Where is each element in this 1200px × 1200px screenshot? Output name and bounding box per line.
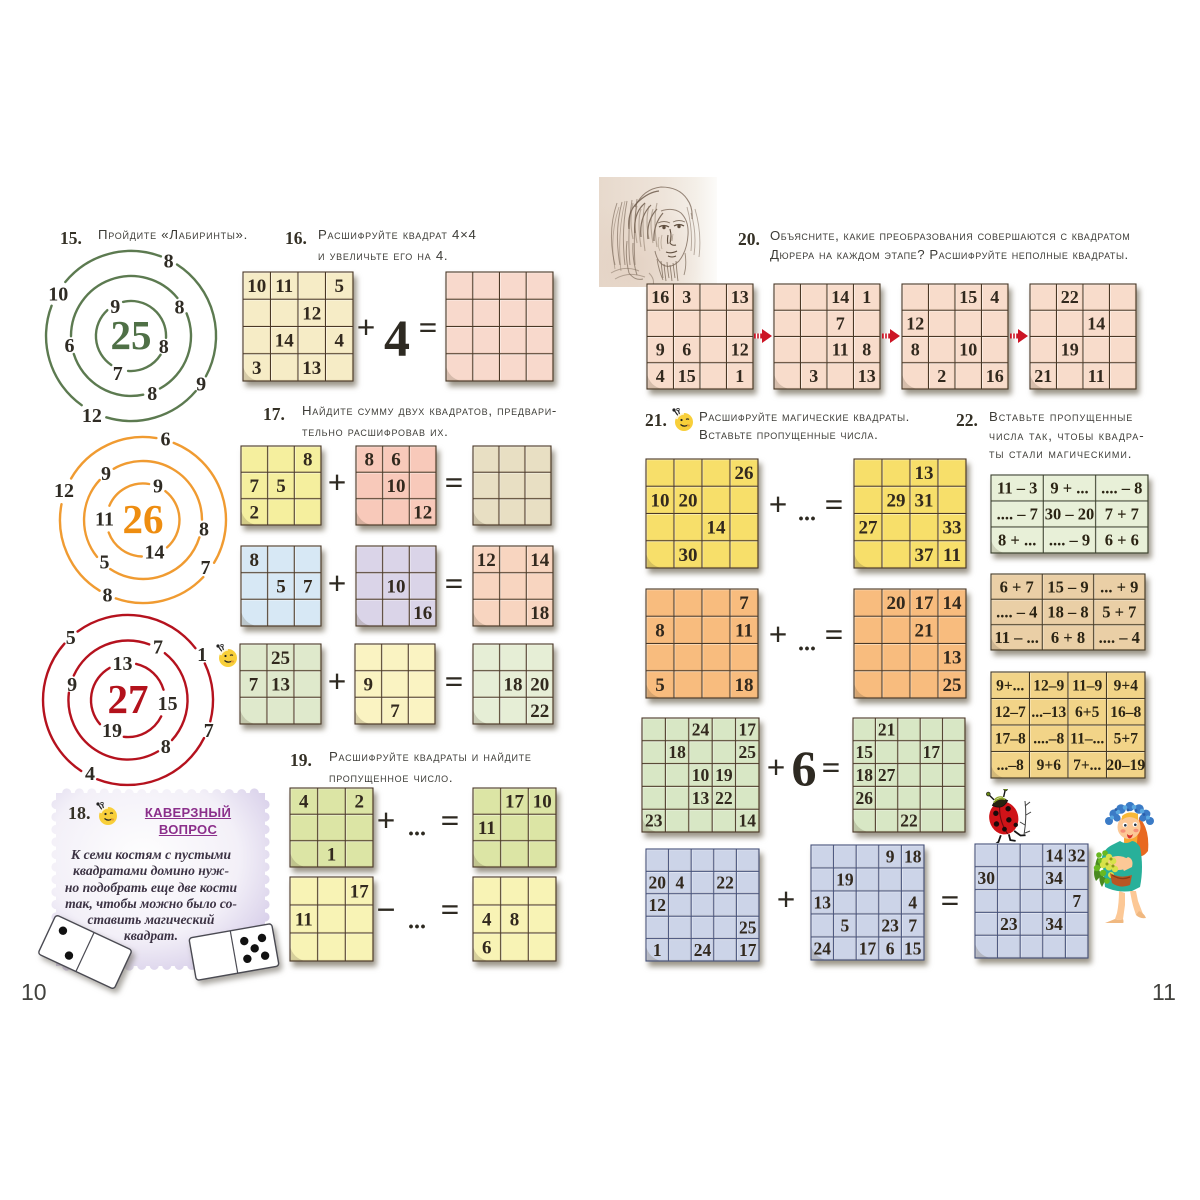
svg-text:8: 8: [655, 620, 665, 641]
svg-text:.... – 8: .... – 8: [1101, 479, 1142, 498]
svg-text:26: 26: [855, 788, 873, 808]
svg-text:18: 18: [504, 675, 523, 696]
svg-text:21: 21: [878, 719, 896, 739]
svg-text:30: 30: [679, 545, 698, 566]
svg-text:25: 25: [739, 742, 757, 762]
svg-text:5 + 7: 5 + 7: [1102, 603, 1136, 622]
svg-text:24: 24: [692, 719, 710, 739]
svg-text:6: 6: [682, 340, 691, 360]
svg-text:12: 12: [477, 550, 496, 571]
svg-text:21: 21: [915, 620, 934, 641]
svg-text:7: 7: [250, 476, 260, 497]
svg-text:5: 5: [841, 916, 850, 936]
svg-text:6 + 6: 6 + 6: [1105, 531, 1139, 550]
svg-text:7: 7: [249, 675, 259, 696]
svg-text:9: 9: [364, 675, 374, 696]
svg-text:13: 13: [692, 788, 710, 808]
svg-text:13: 13: [271, 675, 290, 696]
svg-text:4: 4: [990, 287, 999, 307]
svg-text:24: 24: [694, 940, 712, 960]
svg-text:6: 6: [482, 938, 492, 959]
svg-text:.... – 4: .... – 4: [1099, 628, 1140, 647]
svg-text:17–8: 17–8: [995, 731, 1026, 748]
svg-text:12–7: 12–7: [995, 704, 1026, 721]
svg-text:31: 31: [915, 490, 934, 511]
svg-text:8: 8: [199, 519, 209, 541]
svg-text:6 + 8: 6 + 8: [1051, 628, 1085, 647]
svg-text:15 – 9: 15 – 9: [1047, 577, 1088, 596]
svg-text:7: 7: [204, 720, 214, 742]
svg-text:8: 8: [250, 550, 259, 571]
svg-text:9+4: 9+4: [1114, 678, 1139, 695]
svg-text:14: 14: [145, 542, 165, 564]
svg-text:27: 27: [878, 765, 896, 785]
svg-text:5: 5: [100, 552, 110, 574]
svg-text:6: 6: [886, 939, 895, 959]
svg-text:24: 24: [814, 939, 832, 959]
svg-text:12: 12: [413, 502, 432, 523]
svg-text:5: 5: [655, 675, 665, 696]
svg-text:10: 10: [48, 283, 68, 305]
svg-text:11 – ...: 11 – ...: [994, 628, 1038, 647]
svg-text:11: 11: [478, 818, 496, 839]
svg-text:6+5: 6+5: [1075, 704, 1100, 721]
svg-text:18: 18: [904, 846, 922, 866]
svg-text:15: 15: [678, 366, 696, 386]
svg-text:4: 4: [676, 873, 685, 893]
svg-text:23: 23: [881, 916, 899, 936]
svg-text:23: 23: [645, 811, 663, 831]
svg-text:26: 26: [735, 463, 754, 484]
svg-text:19: 19: [836, 870, 854, 890]
svg-text:10: 10: [387, 476, 406, 497]
svg-text:19: 19: [102, 720, 122, 742]
svg-text:21: 21: [1034, 366, 1052, 386]
svg-text:4: 4: [334, 331, 344, 352]
svg-text:10: 10: [959, 340, 977, 360]
svg-text:3: 3: [682, 287, 691, 307]
svg-text:13: 13: [731, 287, 749, 307]
svg-text:5: 5: [334, 276, 344, 297]
svg-text:18: 18: [668, 742, 686, 762]
svg-text:8: 8: [303, 450, 313, 471]
svg-text:9+...: 9+...: [996, 678, 1024, 695]
svg-text:15: 15: [855, 742, 873, 762]
svg-text:37: 37: [915, 545, 935, 566]
svg-text:11: 11: [832, 340, 849, 360]
svg-text:14: 14: [530, 550, 550, 571]
svg-text:9: 9: [153, 476, 163, 498]
svg-text:11: 11: [275, 276, 293, 297]
svg-text:13: 13: [113, 653, 133, 675]
svg-text:17: 17: [923, 742, 941, 762]
svg-text:10: 10: [387, 577, 406, 598]
svg-text:12: 12: [731, 340, 749, 360]
svg-text:20–19: 20–19: [1106, 757, 1145, 774]
svg-text:2: 2: [354, 792, 364, 813]
svg-text:15: 15: [158, 693, 178, 715]
svg-text:8: 8: [164, 251, 174, 273]
svg-text:12: 12: [302, 303, 321, 324]
svg-text:12: 12: [54, 480, 74, 502]
svg-text:4: 4: [656, 366, 665, 386]
svg-text:18 – 8: 18 – 8: [1047, 603, 1088, 622]
svg-text:34: 34: [1045, 914, 1063, 934]
svg-text:25: 25: [111, 312, 152, 358]
svg-text:5+7: 5+7: [1114, 731, 1139, 748]
svg-text:22: 22: [716, 873, 734, 893]
svg-text:2: 2: [250, 502, 259, 523]
svg-text:9 + ...: 9 + ...: [1050, 479, 1088, 498]
svg-text:9: 9: [67, 674, 77, 696]
svg-text:11: 11: [943, 545, 961, 566]
svg-text:4: 4: [85, 763, 95, 785]
svg-text:14: 14: [1087, 314, 1105, 334]
svg-text:11 – 3: 11 – 3: [997, 479, 1037, 498]
svg-text:30 – 20: 30 – 20: [1045, 505, 1095, 524]
svg-text:.... – 9: .... – 9: [1049, 531, 1090, 550]
svg-text:16: 16: [413, 603, 432, 624]
svg-text:16: 16: [651, 287, 669, 307]
svg-text:7: 7: [836, 314, 845, 334]
svg-text:1: 1: [735, 366, 744, 386]
svg-text:13: 13: [858, 366, 876, 386]
svg-text:9: 9: [101, 463, 111, 485]
svg-text:25: 25: [271, 648, 290, 669]
svg-text:4: 4: [482, 910, 492, 931]
svg-text:16: 16: [986, 366, 1004, 386]
svg-text:9+6: 9+6: [1037, 757, 1062, 774]
svg-text:20: 20: [887, 593, 906, 614]
svg-text:9: 9: [656, 340, 665, 360]
svg-text:7: 7: [1072, 891, 1081, 911]
svg-text:8: 8: [161, 736, 171, 758]
svg-text:18: 18: [530, 603, 549, 624]
svg-text:7: 7: [390, 701, 400, 722]
svg-text:26: 26: [123, 496, 164, 542]
svg-text:3: 3: [809, 366, 818, 386]
svg-text:10: 10: [692, 765, 710, 785]
svg-text:7: 7: [908, 916, 917, 936]
svg-text:8 + ...: 8 + ...: [998, 531, 1036, 550]
svg-text:34: 34: [1045, 868, 1063, 888]
svg-text:20: 20: [679, 490, 698, 511]
svg-text:6: 6: [391, 450, 401, 471]
svg-text:14: 14: [275, 331, 295, 352]
svg-text:8: 8: [862, 340, 871, 360]
svg-text:8: 8: [159, 336, 169, 358]
svg-text:17: 17: [350, 882, 370, 903]
svg-text:8: 8: [510, 910, 520, 931]
svg-text:5: 5: [66, 627, 76, 649]
svg-text:13: 13: [814, 893, 832, 913]
svg-text:7: 7: [153, 637, 163, 659]
svg-text:14: 14: [943, 593, 963, 614]
svg-text:19: 19: [715, 765, 733, 785]
svg-text:1: 1: [653, 940, 662, 960]
svg-text:12–9: 12–9: [1033, 678, 1064, 695]
svg-text:27: 27: [108, 676, 149, 722]
svg-text:19: 19: [1061, 340, 1079, 360]
svg-text:3: 3: [252, 358, 261, 379]
svg-text:30: 30: [978, 868, 996, 888]
svg-text:22: 22: [1061, 287, 1079, 307]
svg-text:25: 25: [739, 917, 757, 937]
svg-text:14: 14: [707, 518, 727, 539]
svg-text:14: 14: [1045, 845, 1063, 865]
svg-text:6: 6: [65, 335, 75, 357]
svg-text:7: 7: [739, 593, 749, 614]
svg-text:5: 5: [276, 476, 286, 497]
svg-text:15: 15: [904, 939, 922, 959]
svg-text:10: 10: [247, 276, 266, 297]
svg-text:9: 9: [196, 373, 206, 395]
svg-text:7 + 7: 7 + 7: [1105, 505, 1139, 524]
svg-text:14: 14: [831, 287, 849, 307]
svg-text:11: 11: [1088, 366, 1105, 386]
svg-text:18: 18: [735, 675, 754, 696]
svg-text:4: 4: [299, 792, 309, 813]
svg-text:5: 5: [276, 577, 286, 598]
svg-text:.... – 7: .... – 7: [997, 505, 1038, 524]
svg-text:8: 8: [911, 340, 920, 360]
svg-text:17: 17: [859, 939, 877, 959]
svg-text:27: 27: [859, 518, 879, 539]
svg-text:13: 13: [302, 358, 321, 379]
svg-text:17: 17: [505, 792, 525, 813]
svg-text:....–8: ....–8: [1033, 731, 1064, 748]
svg-text:1: 1: [327, 844, 337, 865]
svg-text:1: 1: [862, 287, 871, 307]
svg-text:11–9: 11–9: [1072, 678, 1102, 695]
svg-text:17: 17: [915, 593, 935, 614]
svg-text:11: 11: [735, 620, 753, 641]
svg-text:7: 7: [303, 577, 313, 598]
svg-text:16–8: 16–8: [1110, 704, 1141, 721]
svg-text:10: 10: [533, 792, 552, 813]
svg-text:7: 7: [201, 557, 211, 579]
svg-text:23: 23: [1000, 914, 1018, 934]
svg-text:13: 13: [943, 648, 962, 669]
svg-text:11: 11: [95, 509, 114, 531]
svg-text:9: 9: [886, 846, 895, 866]
svg-text:25: 25: [943, 675, 962, 696]
svg-text:4: 4: [908, 893, 917, 913]
svg-text:7+...: 7+...: [1073, 757, 1101, 774]
svg-text:29: 29: [887, 490, 906, 511]
svg-text:32: 32: [1068, 845, 1086, 865]
svg-text:2: 2: [937, 366, 946, 386]
svg-text:10: 10: [651, 490, 670, 511]
svg-text:... + 9: ... + 9: [1100, 577, 1138, 596]
svg-text:22: 22: [900, 811, 918, 831]
svg-text:7: 7: [113, 363, 123, 385]
svg-text:12: 12: [906, 314, 924, 334]
svg-text:18: 18: [855, 765, 873, 785]
svg-text:22: 22: [530, 701, 549, 722]
svg-text:11–...: 11–...: [1070, 731, 1104, 748]
svg-text:20: 20: [530, 675, 549, 696]
svg-text:8: 8: [147, 383, 157, 405]
svg-text:8: 8: [365, 450, 375, 471]
svg-text:...–8: ...–8: [997, 757, 1024, 774]
svg-text:17: 17: [739, 940, 757, 960]
svg-text:17: 17: [739, 719, 757, 739]
svg-text:15: 15: [959, 287, 977, 307]
svg-text:...–13: ...–13: [1031, 704, 1066, 721]
svg-text:20: 20: [649, 873, 667, 893]
svg-text:22: 22: [715, 788, 733, 808]
svg-text:13: 13: [915, 463, 934, 484]
svg-text:6 + 7: 6 + 7: [1000, 577, 1034, 596]
svg-text:8: 8: [175, 297, 185, 319]
svg-text:33: 33: [943, 518, 962, 539]
svg-text:14: 14: [739, 811, 757, 831]
svg-text:1: 1: [197, 644, 207, 666]
svg-text:6: 6: [161, 429, 171, 451]
svg-text:12: 12: [649, 895, 667, 915]
svg-text:.... – 4: .... – 4: [996, 603, 1037, 622]
